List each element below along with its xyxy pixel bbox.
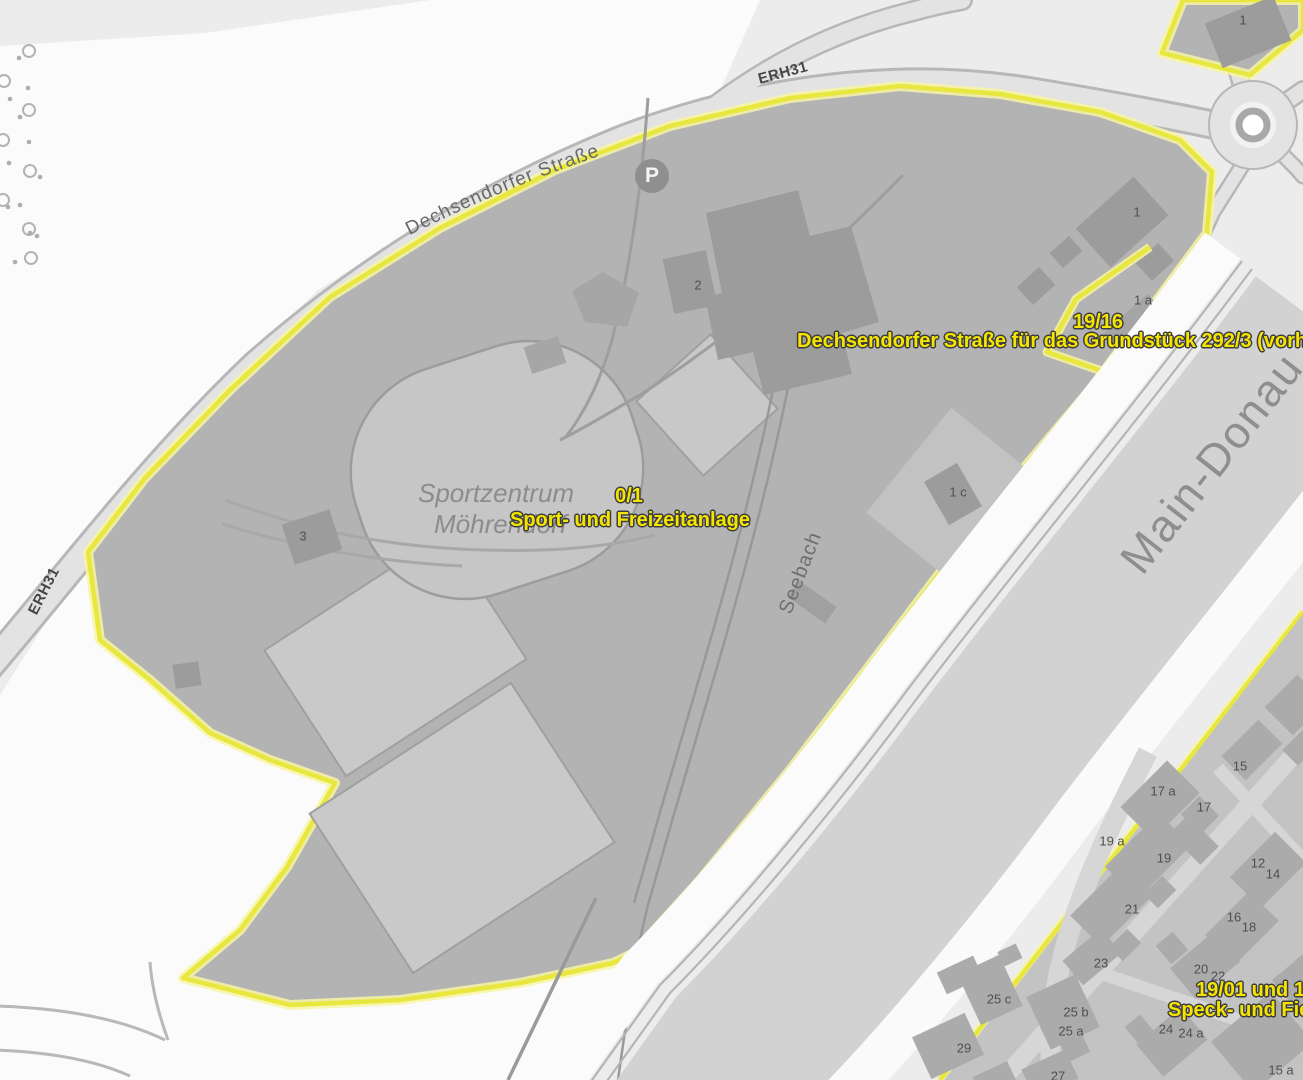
parking-icon: P <box>635 159 669 193</box>
map-viewport[interactable]: Dechsendorfer Straße ERH31 ERH31 Main-Do… <box>0 0 1303 1080</box>
roundabout <box>1209 81 1297 169</box>
